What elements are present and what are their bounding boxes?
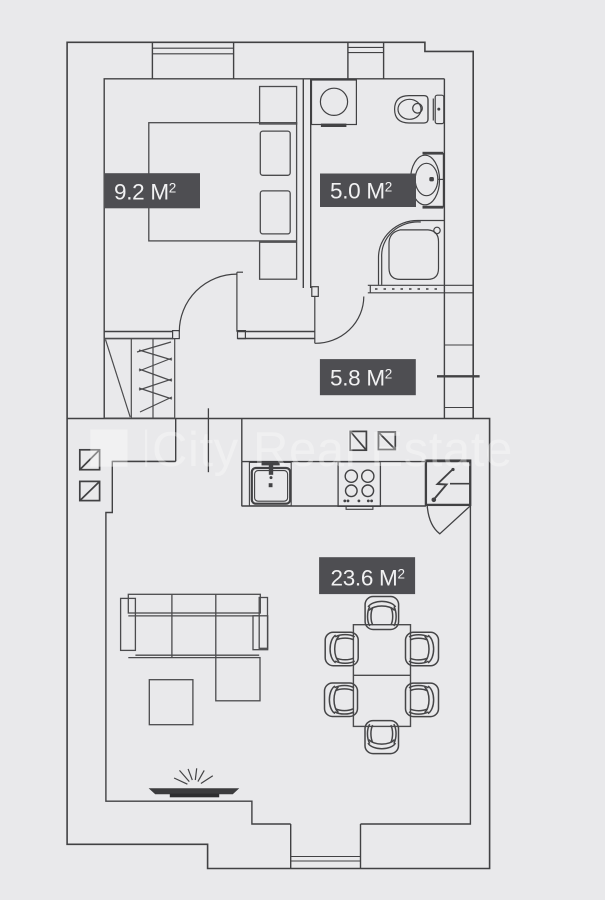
svg-text:City Real Estate: City Real Estate bbox=[152, 423, 513, 477]
svg-text:5.0 M2: 5.0 M2 bbox=[330, 179, 392, 204]
svg-text:23.6 M2: 23.6 M2 bbox=[331, 566, 405, 591]
svg-text:9.2 M2: 9.2 M2 bbox=[114, 180, 176, 205]
svg-text:5.8 M2: 5.8 M2 bbox=[330, 366, 392, 391]
